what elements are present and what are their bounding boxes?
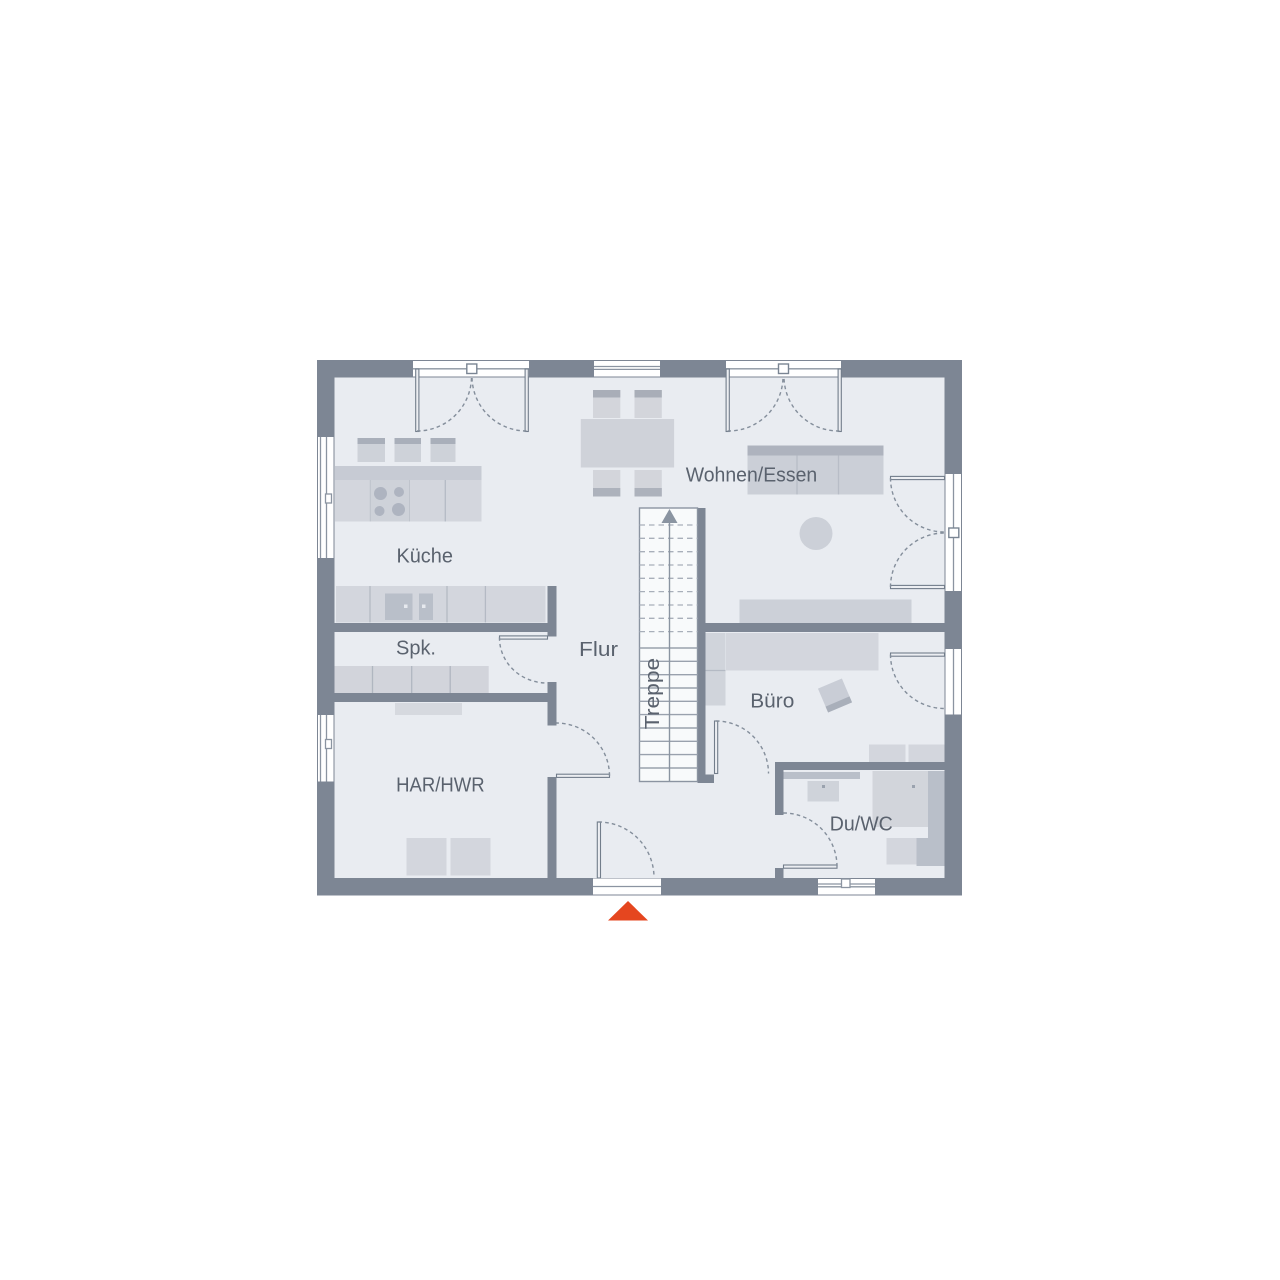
svg-text:Spk.: Spk. xyxy=(396,637,436,660)
svg-text:Küche: Küche xyxy=(396,544,453,567)
svg-text:Treppe: Treppe xyxy=(641,658,664,730)
svg-text:Wohnen/Essen: Wohnen/Essen xyxy=(686,464,818,487)
svg-text:Du/WC: Du/WC xyxy=(830,813,893,836)
svg-text:Flur: Flur xyxy=(579,638,618,661)
svg-text:HAR/HWR: HAR/HWR xyxy=(396,773,485,796)
svg-text:Büro: Büro xyxy=(750,690,794,713)
